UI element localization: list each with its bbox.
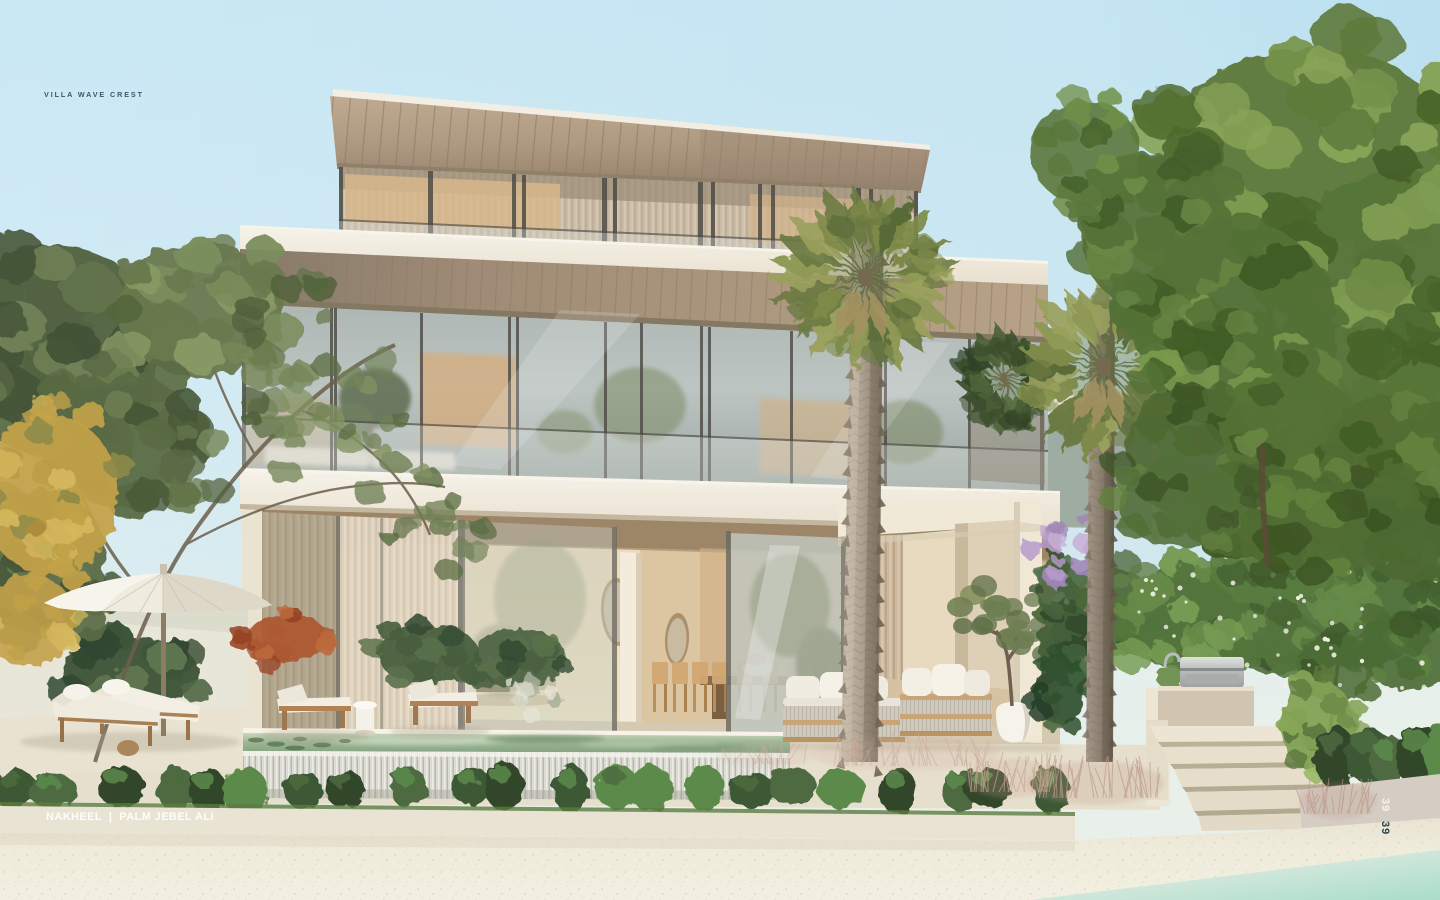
svg-text:NAKHEEL | PALM JEBEL ALI: NAKHEEL | PALM JEBEL ALI [46,811,214,823]
svg-text:39: 39 [1379,821,1391,835]
svg-text:VILLA WAVE CREST: VILLA WAVE CREST [44,90,144,99]
svg-text:39: 39 [1379,798,1391,812]
